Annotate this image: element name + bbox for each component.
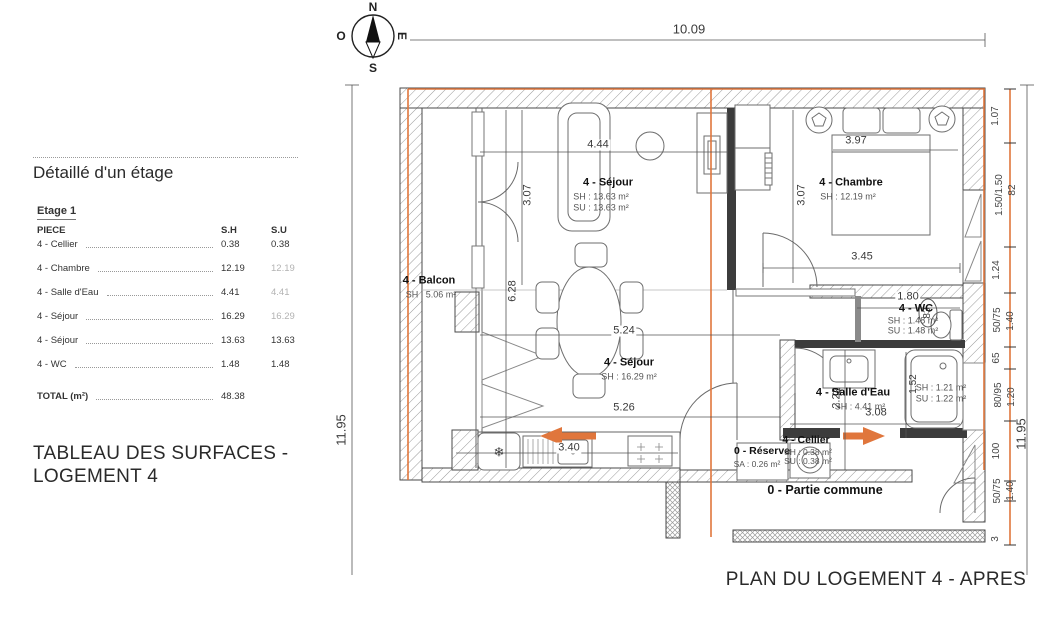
stove	[628, 436, 672, 466]
dim-sejour2-width: 5.24	[611, 326, 636, 337]
room-label-wc: 4 - WC	[899, 304, 933, 315]
table-row: 4 - Séjour 16.29 16.29	[37, 312, 309, 322]
room-label-reserve: 0 - Réserve	[734, 446, 790, 457]
room-label-salle-eau: 4 - Salle d'Eau	[816, 388, 890, 399]
divider	[33, 157, 298, 158]
pillow	[883, 108, 920, 133]
row-leader	[98, 271, 213, 272]
dim-sejour2-width2: 5.26	[611, 403, 636, 414]
compass-west: O	[336, 30, 345, 42]
col-su: S.U	[271, 226, 309, 236]
row-piece: 4 - WC	[37, 360, 67, 370]
chair	[536, 282, 559, 313]
chain-dim: 1.24	[992, 260, 1002, 279]
room-label-balcon: 4 - Balcon	[403, 276, 456, 287]
chain-dim: 65	[992, 352, 1002, 363]
dim-left-height: 11.95	[335, 414, 348, 446]
chain-dim: 3	[991, 536, 1001, 542]
row-piece: 4 - Chambre	[37, 264, 90, 274]
table-row: 4 - Séjour 13.63 13.63	[37, 336, 309, 346]
table-row: 4 - Salle d'Eau 4.41 4.41	[37, 288, 309, 298]
table-caption-line2: LOGEMENT 4	[33, 466, 158, 488]
room-label-cellier: 4 - Cellier	[782, 435, 829, 446]
room-su-baignoire: SU : 1.22 m²	[916, 395, 967, 404]
dim-chambre-depth: 3.07	[797, 184, 808, 205]
row-su: 4.41	[271, 288, 309, 298]
room-label-sejour-top: 4 - Séjour	[583, 178, 633, 189]
table-row: 4 - Chambre 12.19 12.19	[37, 264, 309, 274]
toilet-tank	[950, 310, 962, 340]
floor-label: Etage 1	[37, 205, 76, 220]
dim-sejour-depth: 3.07	[523, 184, 534, 205]
dim-top-width: 10.09	[671, 23, 708, 36]
row-sh: 1.48	[221, 360, 271, 370]
row-sh: 12.19	[221, 264, 271, 274]
chair	[575, 243, 607, 267]
chain-dim: 50/75	[993, 307, 1003, 332]
row-piece: 4 - Séjour	[37, 336, 78, 346]
room-su: SU : 1.48 m²	[888, 327, 939, 336]
row-su: 12.19	[271, 264, 309, 274]
chair	[536, 328, 559, 359]
row-su: 13.63	[271, 336, 309, 346]
row-leader	[86, 319, 213, 320]
room-sh-baignoire: SH : 1.21 m²	[916, 384, 967, 393]
compass-rose	[352, 15, 394, 58]
row-su: 16.29	[271, 312, 309, 322]
chain-dim: 1.07	[991, 106, 1001, 125]
room-sh: SH : 13.63 m²	[573, 193, 629, 202]
table-header-row: PIECE S.H S.U	[37, 226, 309, 236]
room-su: SU : 13.63 m²	[573, 204, 629, 213]
dim-sejour-width: 4.44	[585, 140, 610, 151]
room-su: SU : 0.38 m²	[784, 457, 832, 466]
table-row: 4 - Cellier 0.38 0.38	[37, 240, 309, 250]
row-sh: 13.63	[221, 336, 271, 346]
row-leader	[86, 343, 213, 344]
col-sh: S.H	[221, 226, 271, 236]
row-piece: 4 - Salle d'Eau	[37, 288, 99, 298]
room-sh: SH : 12.19 m²	[820, 193, 876, 202]
room-sa: SA : 0.26 m²	[734, 460, 781, 469]
compass-south: S	[369, 62, 377, 74]
table-caption-line1: TABLEAU DES SURFACES -	[33, 443, 288, 465]
room-label-partie-commune: 0 - Partie commune	[767, 484, 882, 497]
row-su: 1.48	[271, 360, 309, 370]
table-row: 4 - WC 1.48 1.48	[37, 360, 309, 370]
pillow	[843, 108, 880, 133]
sheet-title: PLAN DU LOGEMENT 4 - APRES	[726, 569, 1026, 591]
total-label: TOTAL (m²)	[37, 392, 88, 402]
dim-kitchen-width: 3.40	[556, 443, 581, 454]
side-table	[636, 132, 664, 160]
chain-dim: 1.50/1.50	[995, 174, 1005, 216]
row-leader	[75, 367, 213, 368]
total-value: 48.38	[221, 392, 271, 402]
snowflake-icon: ❄	[494, 446, 505, 459]
floor-plan-sheet: Détaillé d'un étage Etage 1 PIECE S.H S.…	[0, 0, 1053, 626]
wardrobe	[735, 105, 770, 150]
dim-wc-width: 1.80	[895, 292, 920, 303]
chair	[620, 282, 643, 313]
chain-dim: 1.20	[1007, 387, 1017, 406]
chair	[573, 374, 605, 398]
room-label-chambre: 4 - Chambre	[819, 178, 883, 189]
chain-dim: 1.40	[1006, 311, 1016, 330]
row-leader	[96, 399, 213, 400]
arrow-right-icon	[843, 427, 885, 445]
room-sh: SH : 16.29 m²	[601, 373, 657, 382]
compass-north: N	[369, 1, 378, 13]
col-piece: PIECE	[37, 226, 66, 236]
row-piece: 4 - Séjour	[37, 312, 78, 322]
dim-sejour2-height: 6.28	[508, 280, 519, 301]
row-leader	[107, 295, 214, 296]
row-leader	[86, 247, 213, 248]
compass-east: E	[396, 32, 408, 40]
dim-chambre-width: 3.45	[849, 252, 874, 263]
chain-dim: 82	[1008, 184, 1018, 195]
room-sh: SH : 4.41 m²	[835, 403, 886, 412]
dim-chambre-bed-width: 3.97	[843, 136, 868, 147]
chain-dim: 50/75	[993, 478, 1003, 503]
row-su: 0.38	[271, 240, 309, 250]
chain-dim: 100	[992, 443, 1002, 460]
table-title: Détaillé d'un étage	[33, 163, 173, 183]
row-piece: 4 - Cellier	[37, 240, 78, 250]
chain-dim: 1.40	[1006, 481, 1016, 500]
chain-dim: 80/95	[994, 382, 1004, 407]
row-sh: 16.29	[221, 312, 271, 322]
dim-right-height: 11.95	[1015, 418, 1028, 450]
row-sh: 0.38	[221, 240, 271, 250]
room-sh: SH : 1.48 m²	[888, 317, 939, 326]
row-sh: 4.41	[221, 288, 271, 298]
table-total-row: TOTAL (m²) 48.38	[37, 392, 309, 402]
room-label-sejour-bottom: 4 - Séjour	[604, 358, 654, 369]
room-sh: SH : 5.06 m²	[406, 291, 457, 300]
